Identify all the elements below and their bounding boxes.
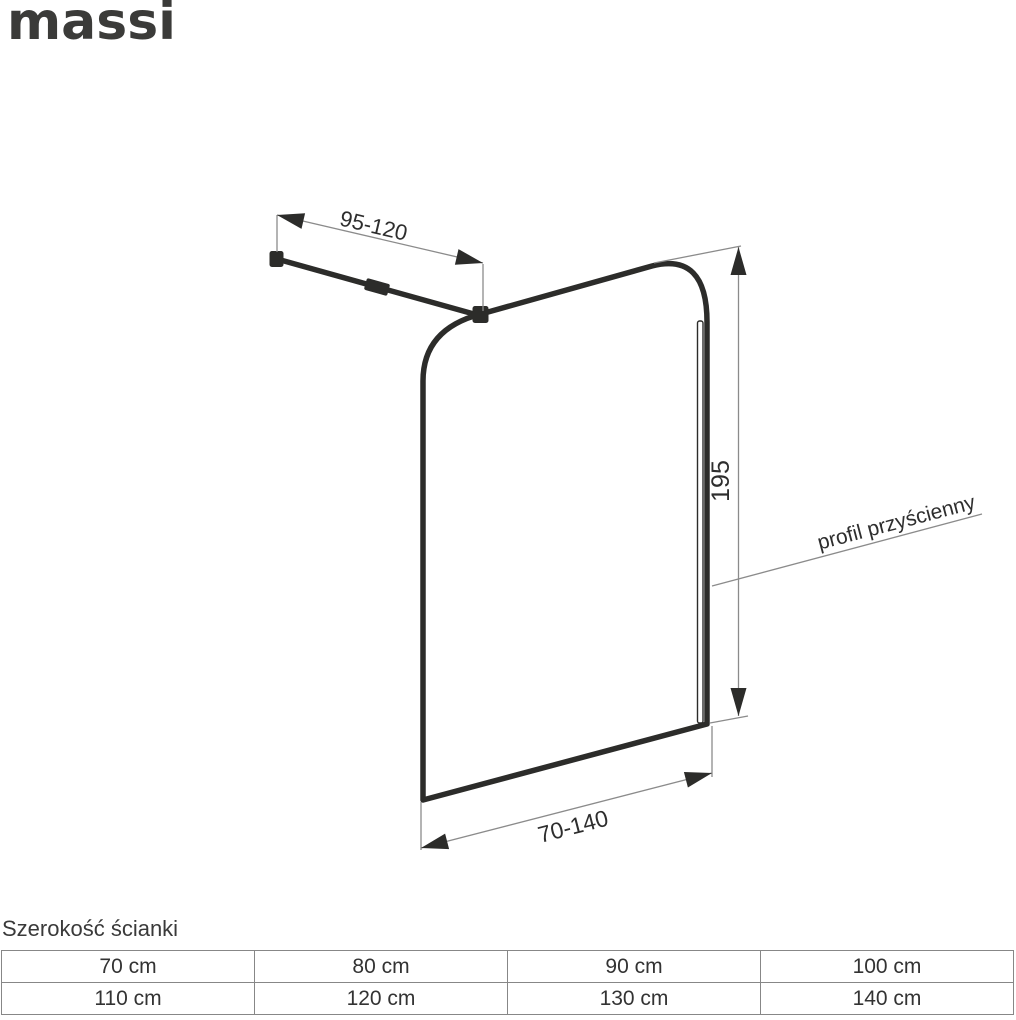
- width-options-section: Szerokość ścianki 70 cm 80 cm 90 cm 100 …: [0, 916, 1016, 1015]
- width-cell: 90 cm: [508, 951, 761, 983]
- arrowhead: [731, 247, 747, 275]
- arrowhead: [421, 834, 449, 850]
- table-row: 70 cm 80 cm 90 cm 100 cm: [2, 951, 1014, 983]
- shower-screen-diagram: 95-120 195 70-140 profil przyścienny: [0, 0, 1016, 910]
- bar-length-label: 95-120: [338, 206, 410, 246]
- height-label: 195: [707, 460, 735, 502]
- table-row: 110 cm 120 cm 130 cm 140 cm: [2, 983, 1014, 1015]
- table-title: Szerokość ścianki: [2, 916, 1016, 942]
- width-cell: 80 cm: [255, 951, 508, 983]
- product-dimension-sheet: massi 95-120 195: [0, 0, 1016, 1020]
- glass-panel-outline: [423, 264, 707, 800]
- arrowhead: [731, 688, 747, 716]
- bar-connector: [364, 278, 390, 296]
- width-cell: 70 cm: [2, 951, 255, 983]
- wall-profile-label: profil przyścienny: [815, 491, 978, 555]
- width-label: 70-140: [535, 805, 611, 848]
- width-cell: 140 cm: [761, 983, 1014, 1015]
- arrowhead: [684, 772, 712, 788]
- width-cell: 130 cm: [508, 983, 761, 1015]
- arrowhead: [277, 213, 305, 229]
- glass-clamp-bracket: [473, 306, 489, 323]
- arrowhead: [455, 249, 483, 265]
- wall-profile-strip: [698, 321, 704, 723]
- width-cell: 100 cm: [761, 951, 1014, 983]
- width-options-table: 70 cm 80 cm 90 cm 100 cm 110 cm 120 cm 1…: [1, 950, 1014, 1015]
- width-cell: 120 cm: [255, 983, 508, 1015]
- wall-mount-bracket: [270, 251, 284, 267]
- width-cell: 110 cm: [2, 983, 255, 1015]
